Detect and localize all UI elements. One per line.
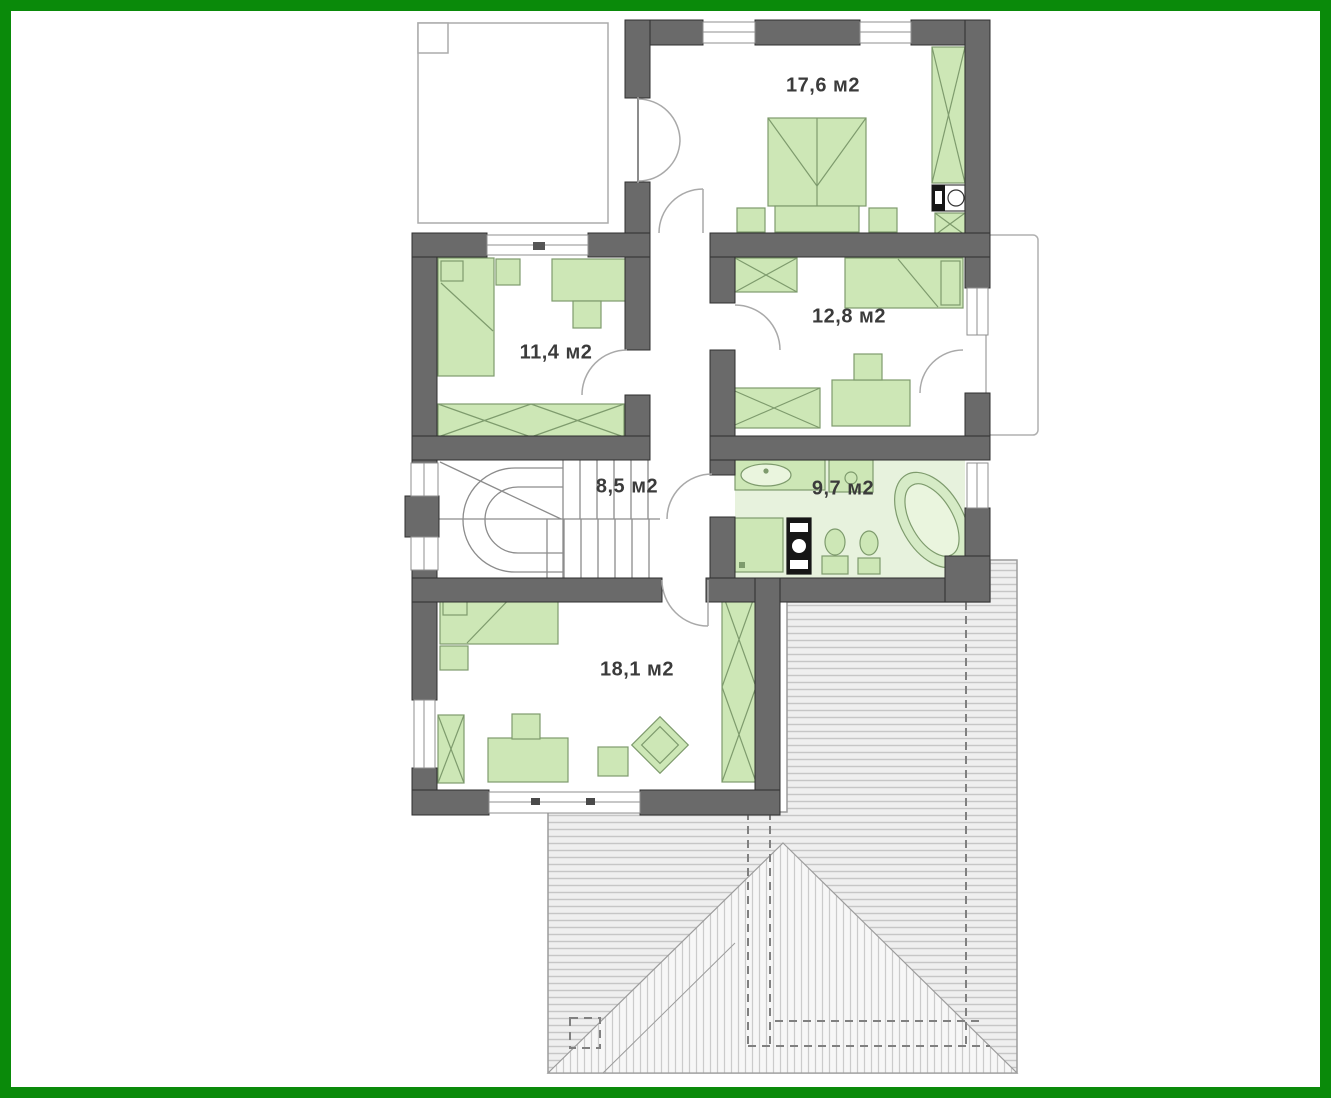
pillow bbox=[941, 261, 960, 305]
window bbox=[411, 463, 438, 496]
door-arc bbox=[667, 474, 712, 519]
nightstand bbox=[496, 259, 520, 285]
chair bbox=[854, 354, 882, 380]
window bbox=[414, 700, 435, 768]
nightstand bbox=[440, 646, 468, 670]
area-label-bedroom-bottom: 18,1 м2 bbox=[600, 659, 674, 682]
window bbox=[487, 235, 588, 255]
nightstand bbox=[737, 208, 765, 232]
double-door-leaf bbox=[638, 99, 680, 141]
terrace-outline bbox=[418, 23, 608, 223]
chair bbox=[512, 714, 540, 739]
area-label-bathroom: 9,7 м2 bbox=[812, 478, 874, 501]
pillow bbox=[441, 261, 463, 281]
door-arc bbox=[735, 305, 780, 350]
window bbox=[411, 537, 438, 570]
floor-plan-drawing bbox=[0, 0, 1331, 1098]
side-table bbox=[598, 747, 628, 776]
door-arc bbox=[659, 189, 703, 233]
desk bbox=[488, 738, 568, 782]
double-door-leaf bbox=[638, 141, 680, 181]
area-label-hall-stairs: 8,5 м2 bbox=[596, 476, 658, 499]
window bbox=[967, 463, 988, 508]
door-arc bbox=[662, 580, 708, 626]
desk bbox=[552, 259, 630, 301]
wardrobe bbox=[722, 592, 756, 782]
chair bbox=[573, 301, 601, 328]
floor-plan-image: 17,6 м2 11,4 м2 12,8 м2 8,5 м2 9,7 м2 18… bbox=[0, 0, 1331, 1098]
area-label-bedroom-top: 17,6 м2 bbox=[786, 75, 860, 98]
area-label-bedroom-right: 12,8 м2 bbox=[812, 306, 886, 329]
window bbox=[703, 22, 755, 43]
wardrobe bbox=[438, 404, 624, 437]
balcony-door-arc bbox=[920, 350, 963, 393]
window bbox=[967, 288, 988, 335]
sink bbox=[741, 464, 791, 486]
balcony-outline bbox=[986, 235, 1038, 435]
window bbox=[489, 792, 640, 813]
window bbox=[860, 22, 911, 43]
chimney-square bbox=[418, 23, 448, 53]
bed-foot bbox=[775, 206, 859, 232]
bedroom-right-furniture bbox=[728, 258, 963, 428]
area-label-bedroom-left: 11,4 м2 bbox=[520, 342, 593, 365]
washer-dryer-stack bbox=[787, 518, 811, 574]
nightstand bbox=[869, 208, 897, 232]
washbasin bbox=[932, 185, 965, 211]
armchair bbox=[632, 717, 689, 774]
desk bbox=[832, 380, 910, 426]
roof-plan bbox=[548, 560, 1017, 1073]
